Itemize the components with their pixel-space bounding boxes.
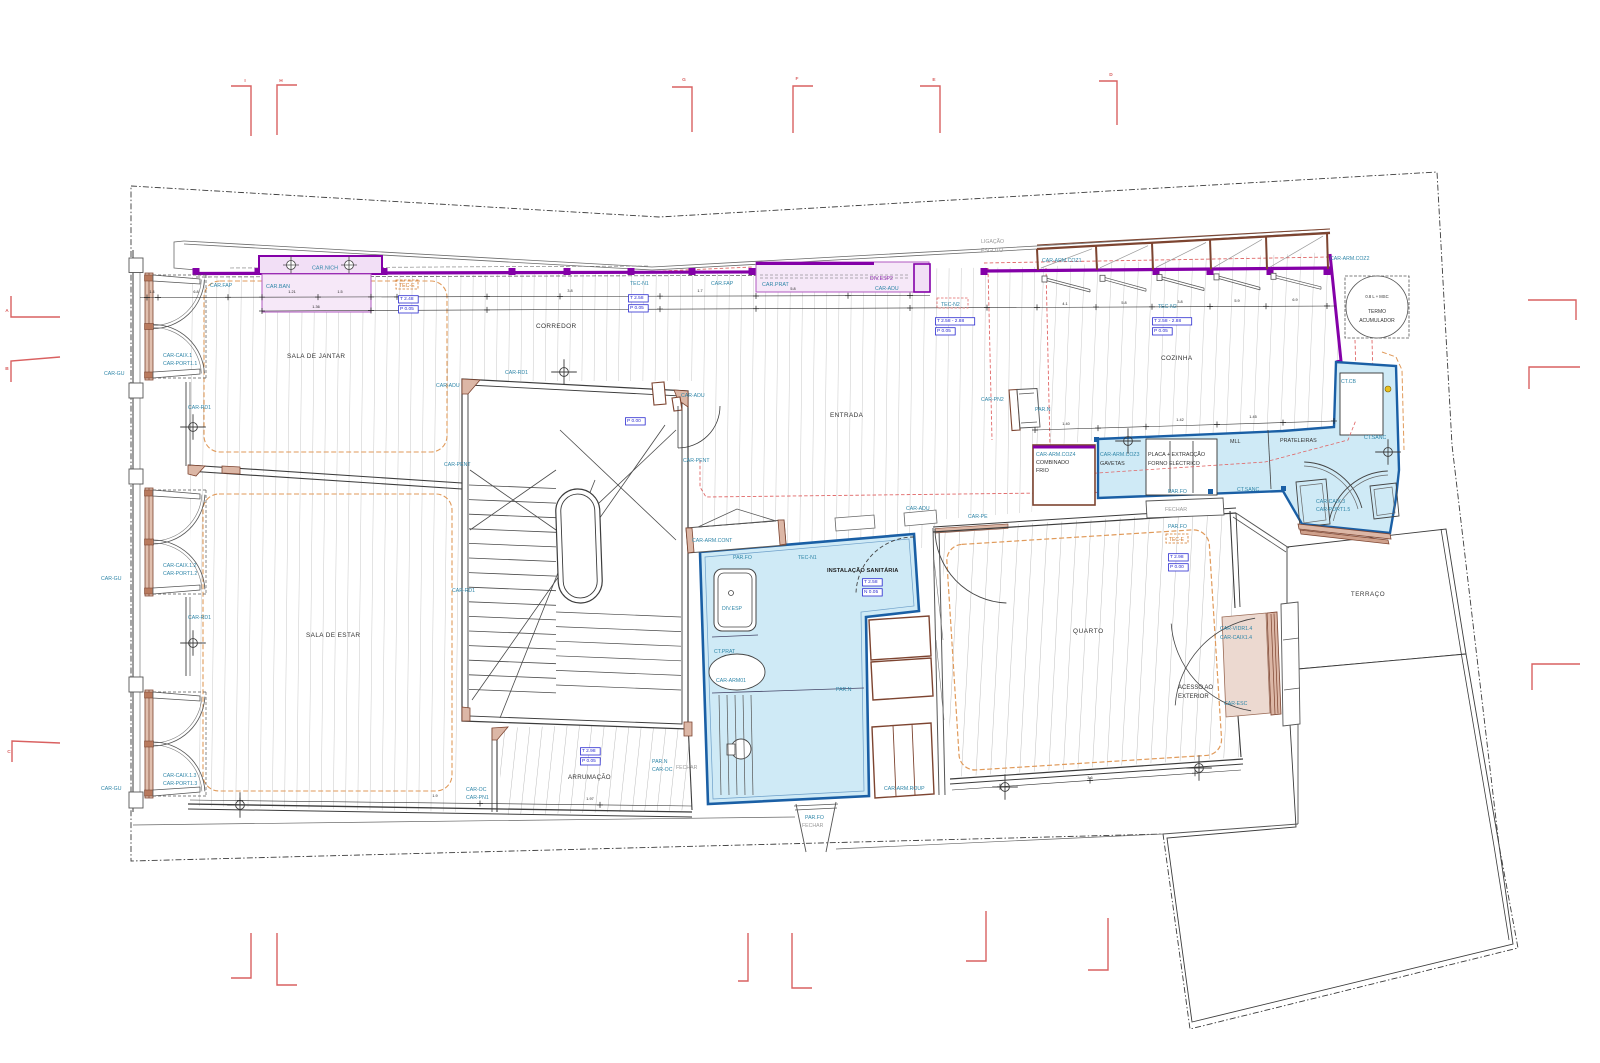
svg-text:1.36: 1.36 (312, 305, 319, 309)
svg-text:T 2.98: T 2.98 (582, 748, 596, 754)
svg-text:1.42: 1.42 (1176, 418, 1183, 422)
svg-text:P 0.05: P 0.05 (937, 328, 951, 334)
svg-text:CAR-CAIX.1: CAR-CAIX.1 (163, 353, 192, 359)
svg-text:CAR-ARM.COZ3: CAR-ARM.COZ3 (1100, 452, 1140, 458)
svg-text:CAR-VIDR1.4: CAR-VIDR1.4 (1220, 626, 1252, 632)
svg-text:TEC-E: TEC-E (1169, 537, 1185, 543)
svg-text:FECHAR: FECHAR (676, 765, 698, 771)
svg-text:3.6: 3.6 (1087, 776, 1092, 780)
svg-text:T 2.98: T 2.98 (1170, 554, 1184, 560)
svg-text:PLACA + EXTRACÇÃO: PLACA + EXTRACÇÃO (1148, 451, 1205, 458)
svg-text:SALA DE JANTAR: SALA DE JANTAR (287, 353, 345, 360)
svg-text:CAR-ARM.COZ2: CAR-ARM.COZ2 (1330, 256, 1370, 262)
svg-text:CAR-RD1: CAR-RD1 (452, 588, 475, 594)
svg-text:6.8: 6.8 (193, 290, 198, 294)
svg-text:ENTRADA: ENTRADA (830, 412, 864, 419)
svg-text:CAR-ARM.COZ4: CAR-ARM.COZ4 (1036, 452, 1076, 458)
svg-text:TERRAÇO: TERRAÇO (1351, 591, 1385, 598)
svg-text:CAR-OC: CAR-OC (466, 787, 487, 793)
svg-text:PAR.N: PAR.N (836, 687, 852, 693)
svg-text:MLL: MLL (1230, 439, 1241, 445)
svg-text:T 2.58 - 2.88: T 2.58 - 2.88 (937, 318, 964, 324)
svg-text:1.97: 1.97 (586, 797, 593, 801)
svg-text:P 0.05: P 0.05 (1154, 328, 1168, 334)
svg-text:CAR-ARM01: CAR-ARM01 (716, 678, 746, 684)
svg-text:5.8: 5.8 (1121, 301, 1126, 305)
svg-text:CAR-PENT: CAR-PENT (683, 458, 710, 464)
svg-text:PAR.N: PAR.N (652, 759, 668, 765)
svg-text:CAR-CAIX.1.3: CAR-CAIX.1.3 (163, 773, 197, 779)
svg-text:CAR.FAP: CAR.FAP (711, 281, 734, 287)
svg-text:GAVETAS: GAVETAS (1100, 461, 1125, 467)
svg-text:P 0.05: P 0.05 (582, 758, 596, 764)
svg-text:CAR-CAIX.3: CAR-CAIX.3 (1316, 499, 1345, 505)
svg-text:FECHAR: FECHAR (802, 823, 824, 829)
svg-text:CAR-PENT: CAR-PENT (444, 462, 471, 468)
svg-text:CT.SANC: CT.SANC (1364, 435, 1386, 441)
svg-text:CT.PRAT: CT.PRAT (714, 649, 736, 655)
svg-text:A: A (5, 308, 9, 314)
svg-text:CAR.PRAT: CAR.PRAT (762, 282, 790, 288)
svg-text:QUARTO: QUARTO (1073, 628, 1104, 635)
svg-text:CAR-GU: CAR-GU (101, 786, 122, 792)
svg-text:CAR-PORT1.2: CAR-PORT1.2 (163, 571, 197, 577)
svg-text:1.7: 1.7 (697, 289, 702, 293)
svg-text:F: F (796, 76, 799, 82)
svg-text:PAR.FO: PAR.FO (805, 815, 824, 821)
svg-text:T 2.58: T 2.58 (864, 579, 878, 585)
svg-text:CAR-CAIX.1.2: CAR-CAIX.1.2 (163, 563, 197, 569)
svg-text:P 0.05: P 0.05 (630, 305, 644, 311)
svg-text:CAR-RD1: CAR-RD1 (505, 370, 528, 376)
svg-text:ACUMULADOR: ACUMULADOR (1359, 318, 1395, 324)
svg-text:H: H (279, 78, 283, 84)
svg-text:CAR-ADU: CAR-ADU (681, 393, 705, 399)
svg-text:1.21: 1.21 (288, 290, 295, 294)
svg-text:COMBINADO: COMBINADO (1036, 460, 1069, 466)
svg-text:INSTALAÇÃO SANITÁRIA: INSTALAÇÃO SANITÁRIA (827, 567, 898, 574)
svg-text:CAR.FAP: CAR.FAP (210, 283, 233, 289)
svg-text:0.8 L + MSC: 0.8 L + MSC (1365, 294, 1388, 299)
svg-text:CAR-ADU: CAR-ADU (436, 383, 460, 389)
svg-text:FRIO: FRIO (1036, 468, 1049, 474)
svg-text:CAR-PORT1.3: CAR-PORT1.3 (163, 781, 197, 787)
svg-text:5.8: 5.8 (790, 287, 795, 291)
svg-text:CAR-RD1: CAR-RD1 (188, 405, 211, 411)
svg-text:T 2.58 - 2.88: T 2.58 - 2.88 (1154, 318, 1181, 324)
svg-text:ESGOTO: ESGOTO (981, 248, 1003, 254)
svg-text:1.9: 1.9 (432, 794, 437, 798)
svg-text:CAR.BAN: CAR.BAN (266, 284, 290, 290)
svg-text:CAR-ARM.ROUP: CAR-ARM.ROUP (884, 786, 925, 792)
svg-text:P 0.00: P 0.00 (627, 418, 641, 424)
svg-text:CAR-GU: CAR-GU (101, 576, 122, 582)
svg-text:CAR-PN2: CAR-PN2 (981, 397, 1004, 403)
svg-text:CORREDOR: CORREDOR (536, 323, 576, 330)
svg-text:ARRUMAÇÃO: ARRUMAÇÃO (568, 774, 611, 781)
svg-text:PAR.FO: PAR.FO (733, 555, 752, 561)
svg-text:T 2.48: T 2.48 (400, 296, 414, 302)
svg-text:5.9: 5.9 (1234, 299, 1239, 303)
svg-text:CT.CB: CT.CB (1341, 379, 1357, 385)
svg-text:SALA DE ESTAR: SALA DE ESTAR (306, 632, 360, 639)
svg-text:FECHAR: FECHAR (1165, 507, 1187, 513)
svg-text:TEC-N2: TEC-N2 (1158, 304, 1177, 310)
svg-text:TERMO: TERMO (1368, 309, 1386, 315)
svg-text:1.45: 1.45 (1249, 415, 1256, 419)
svg-text:CAR-PN1: CAR-PN1 (466, 795, 489, 801)
svg-text:PAR.FO: PAR.FO (1168, 489, 1187, 495)
svg-text:CAR-ARM.CONT: CAR-ARM.CONT (692, 538, 733, 544)
svg-text:3.8: 3.8 (567, 289, 572, 293)
svg-text:DIV.ESP2: DIV.ESP2 (870, 276, 893, 282)
svg-text:3.8: 3.8 (1177, 300, 1182, 304)
svg-text:1.5: 1.5 (337, 290, 342, 294)
svg-text:CAR-PE: CAR-PE (968, 514, 988, 520)
svg-text:FORNO ELÉCTRICO: FORNO ELÉCTRICO (1148, 460, 1200, 467)
svg-text:P 0.05: P 0.05 (400, 306, 414, 312)
svg-text:4.1: 4.1 (1062, 302, 1067, 306)
svg-text:P 0.00: P 0.00 (1170, 564, 1184, 570)
svg-text:CAR-PORT1.1: CAR-PORT1.1 (163, 361, 197, 367)
svg-text:CAR-ESC: CAR-ESC (1224, 701, 1248, 707)
svg-text:TEC-N2: TEC-N2 (941, 302, 960, 308)
svg-text:ACESSO AO: ACESSO AO (1178, 685, 1213, 691)
svg-text:CAR.NICH: CAR.NICH (312, 266, 338, 272)
svg-text:TEC-N1: TEC-N1 (798, 555, 817, 561)
svg-text:1.4: 1.4 (149, 290, 154, 294)
svg-text:EXTERIOR: EXTERIOR (1178, 694, 1209, 700)
svg-text:PAR.FO: PAR.FO (1168, 524, 1187, 530)
svg-text:1.40: 1.40 (1062, 422, 1069, 426)
svg-text:G: G (682, 77, 686, 83)
svg-text:CAR-RD1: CAR-RD1 (188, 615, 211, 621)
svg-text:PAR.N: PAR.N (1035, 407, 1051, 413)
svg-text:DIV.ESP: DIV.ESP (722, 606, 743, 612)
svg-text:CAR-CAIX1.4: CAR-CAIX1.4 (1220, 635, 1252, 641)
svg-text:C: C (7, 749, 11, 755)
svg-text:T 2.58: T 2.58 (630, 295, 644, 301)
svg-text:TEC-E: TEC-E (399, 283, 415, 289)
svg-text:COZINHA: COZINHA (1161, 355, 1193, 362)
svg-text:CAR-PORT1.5: CAR-PORT1.5 (1316, 507, 1350, 513)
svg-text:CAR-ADU: CAR-ADU (875, 286, 899, 292)
svg-text:N 0.05: N 0.05 (864, 589, 878, 595)
svg-text:B: B (5, 366, 9, 372)
svg-text:TEC-N1: TEC-N1 (630, 281, 649, 287)
svg-text:CAR-OC: CAR-OC (652, 767, 673, 773)
svg-text:CT.SANC: CT.SANC (1237, 487, 1259, 493)
svg-text:6.9: 6.9 (1292, 298, 1297, 302)
svg-text:CAR-GU: CAR-GU (104, 371, 125, 377)
svg-text:D: D (1109, 72, 1113, 78)
svg-text:LIGAÇÃO: LIGAÇÃO (981, 238, 1004, 245)
svg-text:PRATELEIRAS: PRATELEIRAS (1280, 438, 1317, 444)
svg-text:CAR-ARM.COZ1: CAR-ARM.COZ1 (1042, 258, 1082, 264)
